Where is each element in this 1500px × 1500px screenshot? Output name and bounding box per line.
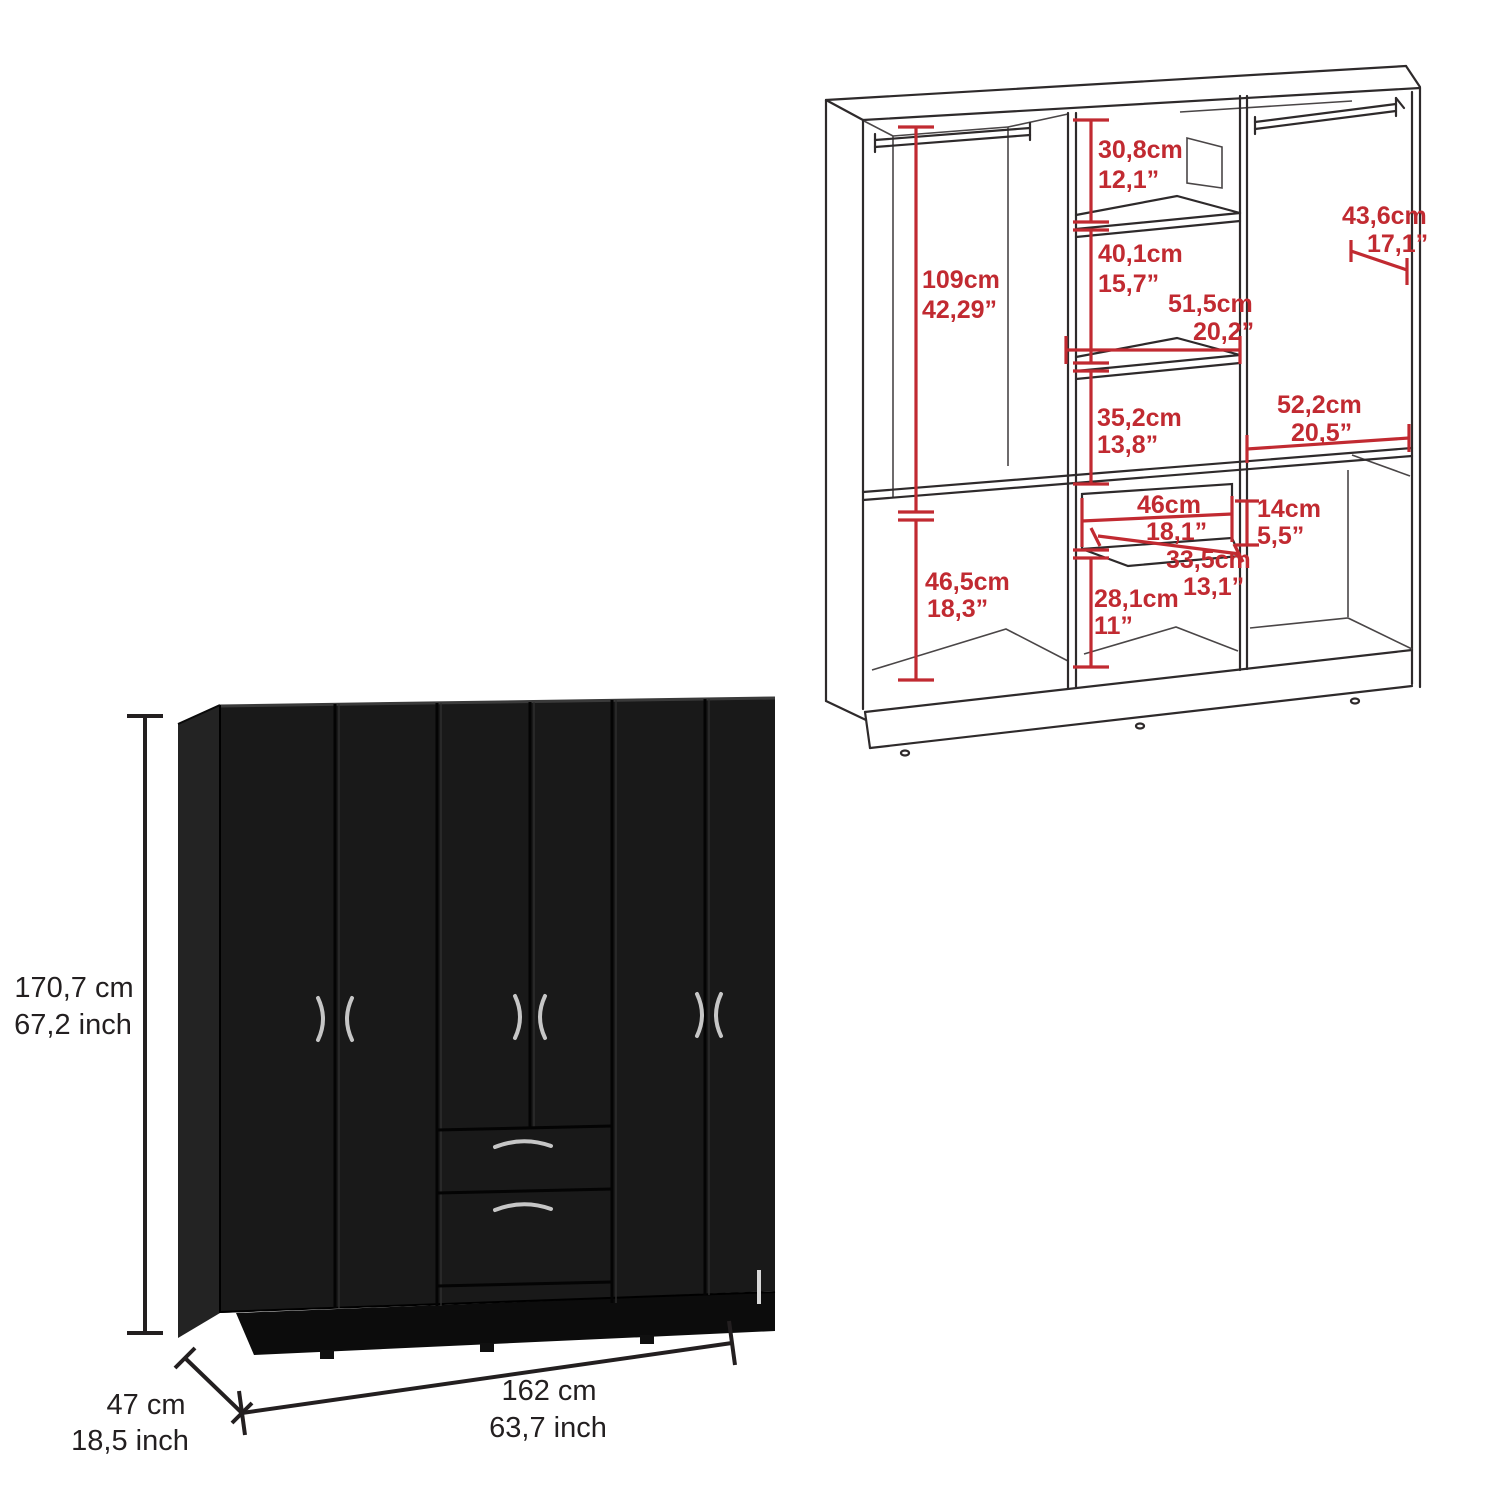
dim-drawer-depth-inch: 13,1” <box>1183 573 1244 601</box>
dim-lower-middle-gap-inch: 13,8” <box>1097 431 1158 459</box>
product-dimension-sheet: 30,8cm 12,1” 109cm 42,29” 40,1cm 15,7” 5… <box>0 0 1500 1500</box>
dim-drawer-width-cm: 46cm <box>1137 491 1201 519</box>
dim-right-shelf-width-cm: 52,2cm <box>1277 391 1362 419</box>
wardrobe-foot <box>320 1350 334 1359</box>
dim-middle-shelf-gap-inch: 15,7” <box>1098 270 1159 298</box>
dim-top-shelf-gap-cm: 30,8cm <box>1098 136 1183 164</box>
wardrobe-side-panel <box>178 705 220 1338</box>
dim-right-section-width-inch: 17,1” <box>1367 230 1428 258</box>
dim-bottom-middle-cubby-inch: 11” <box>1094 612 1133 640</box>
dim-bottom-left-cubby-cm: 46,5cm <box>925 568 1010 596</box>
door-edge-highlight <box>757 1270 761 1304</box>
wardrobe-foot <box>640 1335 654 1344</box>
dim-middle-shelf-width-cm: 51,5cm <box>1168 290 1253 318</box>
right-hanging-rod <box>1255 98 1404 134</box>
dim-right-shelf-width-inch: 20,5” <box>1291 419 1352 447</box>
overall-width-inch: 63,7 inch <box>489 1412 607 1444</box>
dim-lower-middle-gap-cm: 35,2cm <box>1097 404 1182 432</box>
dim-bottom-middle-cubby-cm: 28,1cm <box>1094 585 1179 613</box>
dim-drawer-depth-cm: 33,5cm <box>1166 546 1251 574</box>
dim-top-shelf-gap-inch: 12,1” <box>1098 166 1159 194</box>
overall-width-cm: 162 cm <box>501 1375 596 1407</box>
dim-drawer-height-cm: 14cm <box>1257 495 1321 523</box>
dim-drawer-height-inch: 5,5” <box>1257 522 1304 550</box>
sheet-svg: 30,8cm 12,1” 109cm 42,29” 40,1cm 15,7” 5… <box>0 0 1500 1500</box>
wardrobe-front-face <box>220 697 775 1313</box>
overall-depth-cm: 47 cm <box>107 1389 186 1421</box>
wireframe-diagram: 30,8cm 12,1” 109cm 42,29” 40,1cm 15,7” 5… <box>826 66 1428 756</box>
overall-height-cm: 170,7 cm <box>14 972 133 1004</box>
dim-right-section-width-cm: 43,6cm <box>1342 202 1427 230</box>
dim-left-hanging-inch: 42,29” <box>922 296 997 324</box>
dim-drawer-width-inch: 18,1” <box>1146 518 1207 546</box>
wardrobe-foot <box>480 1343 494 1352</box>
dim-middle-shelf-width-inch: 20,2” <box>1193 318 1254 346</box>
wardrobe-render: 170,7 cm 67,2 inch 47 cm 18,5 inch 162 c… <box>14 697 775 1457</box>
dim-bottom-left-cubby-inch: 18,3” <box>927 595 988 623</box>
overall-height-inch: 67,2 inch <box>14 1009 132 1041</box>
dim-middle-shelf-gap-cm: 40,1cm <box>1098 240 1183 268</box>
dim-left-hanging-cm: 109cm <box>922 266 1000 294</box>
overall-depth-inch: 18,5 inch <box>71 1425 189 1457</box>
red-dimension-labels: 30,8cm 12,1” 109cm 42,29” 40,1cm 15,7” 5… <box>922 136 1428 640</box>
